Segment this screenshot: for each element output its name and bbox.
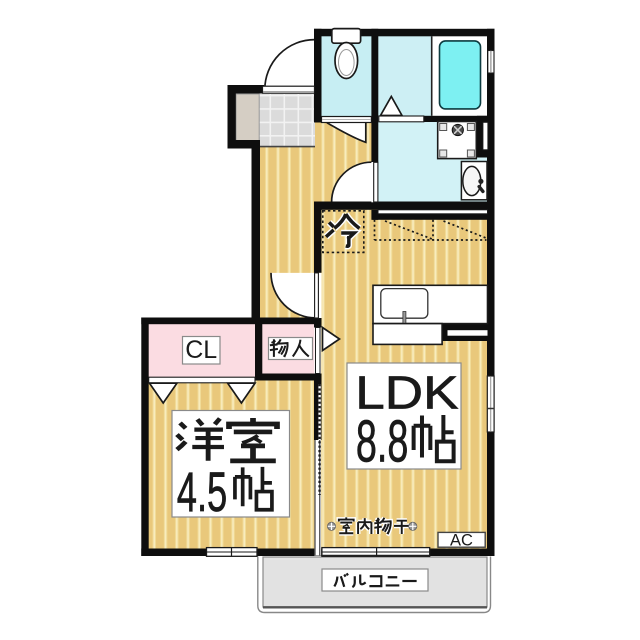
svg-text:4.5: 4.5 [177,461,228,522]
svg-text:8.8: 8.8 [356,409,408,475]
svg-text:AC: AC [450,532,473,550]
svg-text:CL: CL [185,336,217,364]
